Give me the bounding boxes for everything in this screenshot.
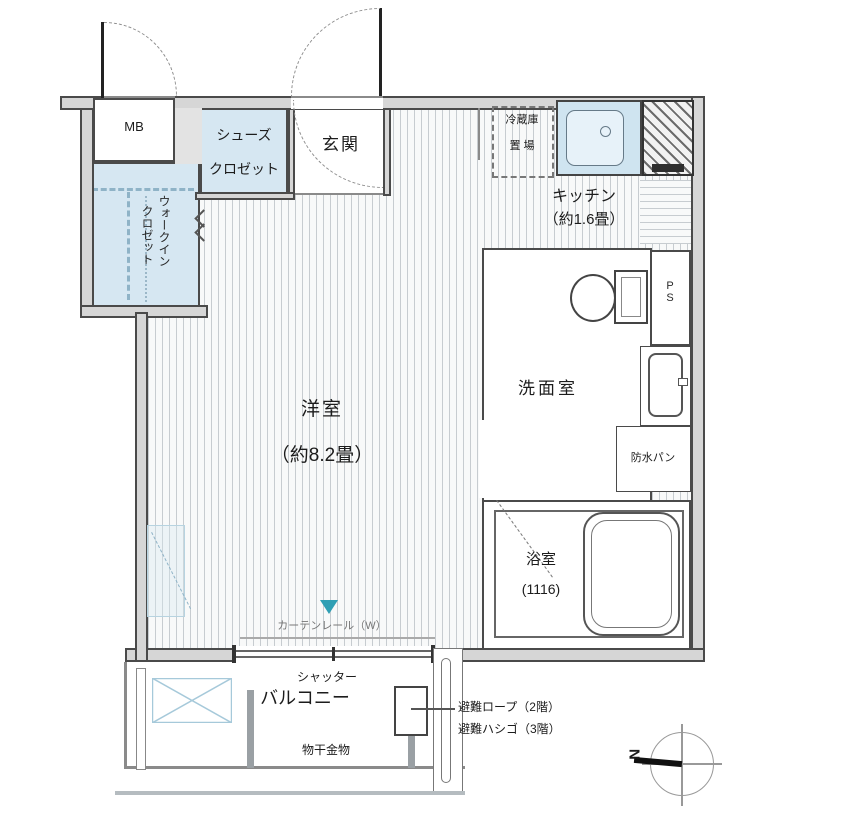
wall-shoe-closet-bottom [195, 192, 295, 200]
curtain-rail-label: カーテンレール（W） [277, 620, 386, 632]
washroom-door-opening [479, 420, 487, 498]
entrance-door-arc [291, 8, 380, 96]
wic-label-right: ウォークイン [158, 195, 170, 267]
floor-plan: N MB シューズ クロゼット 玄関 ウォークイン クロゼット 冷蔵庫 置 場 … [0, 0, 849, 824]
entrance-label: 玄関 [322, 136, 360, 155]
kitchen-stove-panel [652, 164, 684, 172]
entrance-door-lintel [291, 96, 383, 98]
room-side-panel [147, 525, 185, 617]
wall-entrance-right [383, 108, 391, 196]
shoe-closet-area [200, 108, 288, 196]
shutter-label: シャッター [297, 671, 357, 684]
entrance-step-line [293, 193, 390, 195]
wall-bottom-right [435, 648, 705, 662]
kitchen-label: キッチン [552, 188, 616, 206]
wic-hanger-dash-v1 [127, 192, 130, 300]
kitchen-tap [600, 126, 611, 137]
washbasin-tap [678, 378, 688, 386]
kitchen-corner-line [478, 108, 480, 160]
wic-hanger-dash-h [92, 188, 194, 191]
fridge-label-2: 置 場 [509, 140, 534, 152]
wall-right [691, 96, 705, 662]
wall-left-upper [80, 108, 94, 318]
ac-unit-x [152, 678, 232, 723]
ac-unit-space [152, 678, 232, 723]
bathtub-inner [591, 520, 672, 628]
wic-label-left: クロゼット [141, 205, 153, 265]
curtain-rail-marker [320, 600, 338, 614]
bath-label: 浴室 [526, 552, 556, 569]
shoe-closet-label-1: シューズ [216, 128, 271, 143]
toilet-bowl [570, 274, 616, 322]
mb-door-arc [104, 22, 177, 96]
evacuation-leader-line [411, 708, 455, 710]
kitchen-floor-strip [640, 180, 691, 244]
wall-filler-mb [175, 108, 202, 164]
balcony-post-1 [247, 690, 254, 768]
washroom-label: 洗面室 [518, 380, 578, 399]
balcony-partition-pill [441, 658, 451, 783]
waterproof-pan-label: 防水パン [631, 452, 676, 464]
balcony-left-edge [124, 662, 127, 768]
evac-ladder-label: 避難ハシゴ（3階） [458, 720, 561, 737]
window-mullion [332, 647, 335, 661]
compass-north-label: N [625, 749, 642, 760]
bath-size-label: (1116) [522, 582, 560, 597]
shoe-closet-label-2: クロゼット [209, 162, 279, 177]
evacuation-hatch [394, 686, 428, 736]
kitchen-sink-bowl [566, 110, 624, 166]
balcony-left-rail [136, 668, 146, 770]
ground-line [115, 791, 465, 795]
wall-shoe-entrance-divider [288, 108, 295, 196]
mb-label: MB [124, 120, 144, 134]
curtain-rail-line [240, 637, 435, 639]
kitchen-size-label: （約1.6畳） [544, 212, 625, 229]
window-jamb-left [232, 645, 236, 663]
balcony-label: バルコニー [260, 689, 350, 709]
evac-rope-label: 避難ロープ（2階） [458, 698, 560, 715]
room-label: 洋室 [301, 400, 343, 421]
laundry-hardware-label: 物干金物 [302, 744, 350, 757]
toilet-tank-inner [621, 277, 641, 317]
room-size-label: （約8.2畳） [271, 446, 373, 467]
fridge-label-1: 冷蔵庫 [506, 114, 539, 126]
ps-label: PS [664, 280, 675, 304]
compass: N [640, 724, 730, 808]
